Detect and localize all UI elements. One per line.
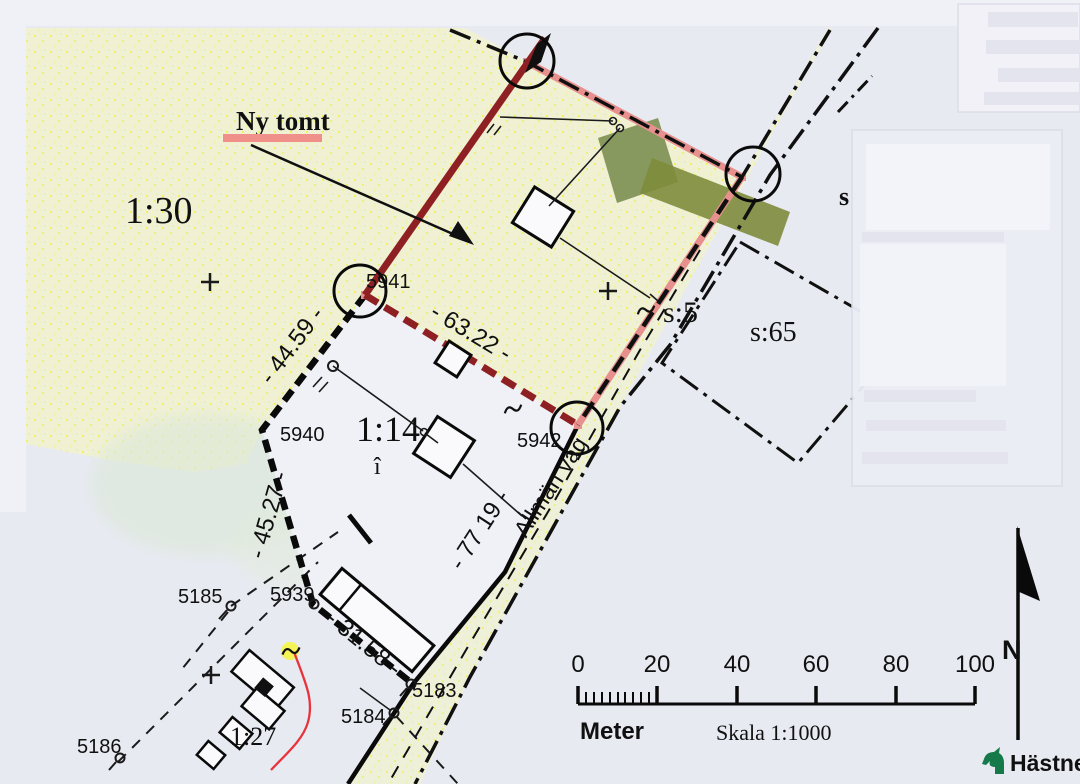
scale-unit-label: Meter <box>580 718 644 745</box>
scan-margin-left <box>0 0 26 512</box>
annotation-underline <box>223 134 322 142</box>
scale-ratio-label: Skala 1:1000 <box>716 720 832 745</box>
scale-tick-80: 80 <box>883 651 910 678</box>
parcel-label-1-27: 1:27 <box>230 722 276 751</box>
scale-tick-60: 60 <box>803 651 830 678</box>
point-label-5942: 5942 <box>517 430 562 452</box>
parcel-label-s5: s:5 <box>663 296 698 329</box>
point-label-5185: 5185 <box>178 586 223 608</box>
scale-tick-100: 100 <box>955 651 995 678</box>
parcel-label-1-30: 1:30 <box>125 190 193 232</box>
new-plot-annotation: Ny tomt <box>236 106 330 136</box>
scale-tick-40: 40 <box>724 651 751 678</box>
cadastral-map: 1:30 1:14 î 1:27 s:5 s:65 s 5941 5940 59… <box>0 0 1080 784</box>
parcel-label-s65: s:65 <box>750 317 797 348</box>
logo: Hästnet <box>982 747 1080 776</box>
point-label-5184: 5184 <box>341 706 386 728</box>
parcel-label-s-partial: s <box>839 182 849 211</box>
point-label-5186: 5186 <box>77 736 122 758</box>
scale-tick-0: 0 <box>571 651 584 678</box>
scan-margin-top <box>0 0 1080 26</box>
point-label-5939: 5939 <box>270 584 315 606</box>
parcel-label-1-14: 1:14 <box>356 409 420 449</box>
point-label-5183: 5183 <box>412 680 457 702</box>
point-label-5940: 5940 <box>280 424 325 446</box>
scale-tick-20: 20 <box>644 651 671 678</box>
scanned-cadastral-map-page: 1:30 1:14 î 1:27 s:5 s:65 s 5941 5940 59… <box>0 0 1080 784</box>
north-label: N <box>1002 635 1022 665</box>
point-label-5941: 5941 <box>366 271 411 293</box>
logo-text: Hästnet <box>1010 750 1080 776</box>
parcel-label-1-14-sub: î <box>373 454 382 480</box>
